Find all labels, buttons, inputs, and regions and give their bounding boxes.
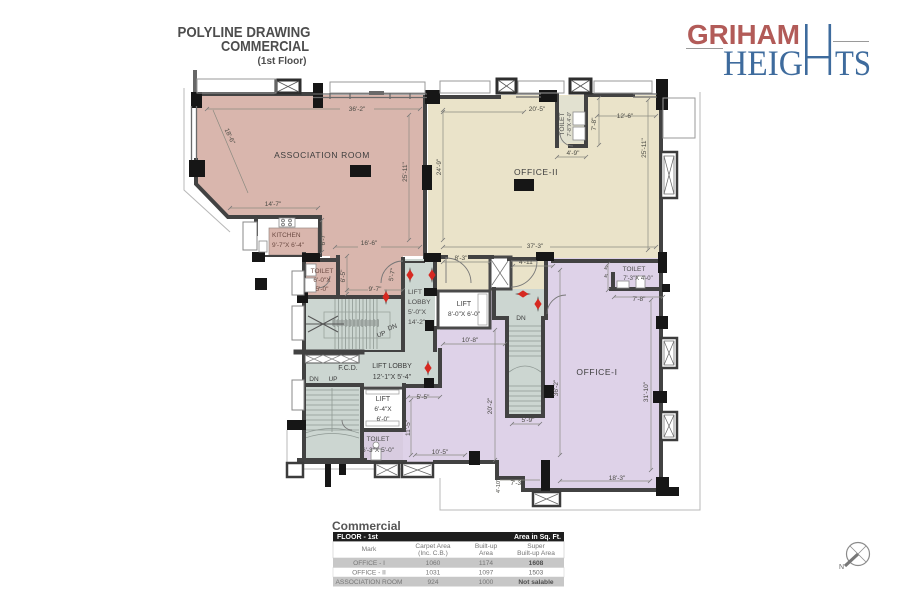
svg-text:5'-5": 5'-5" [417, 394, 431, 401]
svg-text:OFFICE-I: OFFICE-I [576, 367, 617, 377]
svg-text:6'-3"X 5'-0": 6'-3"X 5'-0" [362, 447, 395, 454]
svg-text:7'-8"X 4'-0": 7'-8"X 4'-0" [567, 111, 573, 136]
svg-text:N: N [839, 564, 844, 571]
svg-text:1031: 1031 [426, 570, 441, 577]
svg-text:14'-2": 14'-2" [408, 319, 426, 326]
svg-text:1060: 1060 [426, 560, 441, 567]
svg-text:25'-11": 25'-11" [641, 137, 648, 157]
svg-text:Area: Area [479, 550, 493, 557]
svg-text:18'-3": 18'-3" [609, 475, 626, 482]
svg-text:FLOOR - 1st: FLOOR - 1st [337, 534, 379, 541]
svg-text:LIFT: LIFT [376, 396, 391, 403]
svg-text:1503: 1503 [529, 570, 544, 577]
svg-text:24'-9": 24'-9" [436, 158, 443, 175]
svg-text:5'-9": 5'-9" [522, 417, 536, 424]
svg-text:4'-11": 4'-11" [519, 259, 536, 266]
svg-text:Area in Sq. Ft.: Area in Sq. Ft. [514, 534, 561, 541]
svg-text:OFFICE - II: OFFICE - II [352, 570, 386, 577]
svg-text:7'-3": 7'-3" [511, 480, 525, 487]
svg-text:4': 4' [604, 274, 608, 280]
svg-text:OFFICE - I: OFFICE - I [353, 560, 385, 567]
svg-text:12'-1"X 5'-4": 12'-1"X 5'-4" [373, 374, 412, 381]
svg-text:1174: 1174 [479, 560, 494, 567]
svg-text:16'-6": 16'-6" [361, 240, 378, 247]
svg-text:LIFT: LIFT [457, 301, 472, 308]
svg-text:14'-7": 14'-7" [265, 201, 282, 208]
svg-text:4'-10": 4'-10" [496, 479, 502, 493]
svg-text:Carpet Area: Carpet Area [415, 543, 451, 550]
svg-text:Mark: Mark [362, 546, 377, 553]
svg-text:TS: TS [835, 43, 871, 83]
svg-text:20'-2": 20'-2" [487, 397, 494, 414]
svg-text:HEIG: HEIG [723, 43, 803, 83]
svg-text:UP: UP [328, 376, 337, 383]
svg-text:7'-3"X 4'-0": 7'-3"X 4'-0" [623, 276, 653, 282]
svg-text:7'-8": 7'-8" [591, 117, 598, 131]
svg-text:TOILET: TOILET [559, 113, 566, 136]
svg-text:(Inc. C.B.): (Inc. C.B.) [418, 550, 448, 557]
svg-text:5'-0"X: 5'-0"X [408, 309, 427, 316]
svg-text:OFFICE-II: OFFICE-II [514, 167, 558, 177]
svg-text:6'-4"X: 6'-4"X [374, 406, 392, 413]
svg-text:TOILET: TOILET [367, 436, 390, 443]
svg-text:9'-7": 9'-7" [369, 286, 383, 293]
svg-text:LIFT: LIFT [408, 289, 422, 296]
svg-text:COMMERCIAL: COMMERCIAL [221, 38, 309, 55]
svg-text:12'-6": 12'-6" [617, 113, 634, 120]
svg-text:TOILET: TOILET [623, 266, 646, 273]
svg-text:Built-up: Built-up [475, 543, 498, 550]
svg-text:5'-0": 5'-0" [316, 286, 330, 293]
svg-text:DN: DN [516, 315, 526, 322]
svg-text:924: 924 [427, 579, 438, 586]
svg-text:ASSOCIATION ROOM: ASSOCIATION ROOM [336, 579, 403, 586]
svg-text:10'-5": 10'-5" [432, 449, 449, 456]
svg-text:1608: 1608 [529, 560, 544, 567]
svg-text:6'-7": 6'-7" [320, 232, 327, 246]
svg-text:36'-2": 36'-2" [349, 106, 366, 113]
svg-text:10'-8": 10'-8" [462, 337, 479, 344]
svg-text:31'-10": 31'-10" [643, 381, 650, 402]
svg-text:Not salable: Not salable [518, 579, 554, 586]
svg-text:4'-9": 4'-9" [567, 150, 581, 157]
svg-text:8'-3": 8'-3" [455, 255, 469, 262]
svg-text:20'-5": 20'-5" [529, 106, 546, 113]
svg-text:(1st Floor): (1st Floor) [258, 56, 307, 67]
svg-text:11'-5": 11'-5" [405, 419, 412, 436]
svg-text:6'-0"X: 6'-0"X [313, 277, 331, 284]
svg-text:F.C.D.: F.C.D. [338, 365, 358, 372]
svg-text:6'-5": 6'-5" [340, 269, 347, 283]
svg-text:Built-up Area: Built-up Area [517, 550, 555, 557]
svg-text:LOBBY: LOBBY [408, 299, 431, 306]
svg-text:ASSOCIATION ROOM: ASSOCIATION ROOM [274, 150, 370, 160]
svg-text:4': 4' [604, 266, 608, 272]
svg-text:1097: 1097 [479, 570, 494, 577]
svg-text:9'-7"X 6'-4": 9'-7"X 6'-4" [272, 242, 305, 249]
svg-text:36'-2": 36'-2" [553, 379, 560, 396]
svg-text:DN: DN [309, 376, 319, 383]
svg-text:25'-11": 25'-11" [402, 161, 409, 181]
svg-text:KITCHEN: KITCHEN [272, 232, 301, 239]
svg-text:1000: 1000 [479, 579, 494, 586]
svg-text:7'-8": 7'-8" [633, 296, 647, 303]
svg-text:Super: Super [527, 543, 545, 550]
svg-text:Commercial: Commercial [332, 519, 401, 533]
svg-text:LIFT LOBBY: LIFT LOBBY [372, 363, 412, 370]
svg-text:6'-0": 6'-0" [377, 416, 391, 423]
svg-text:37'-3": 37'-3" [527, 243, 544, 250]
svg-text:TOILET: TOILET [311, 268, 334, 275]
svg-text:8'-0"X 6'-0": 8'-0"X 6'-0" [448, 311, 481, 318]
